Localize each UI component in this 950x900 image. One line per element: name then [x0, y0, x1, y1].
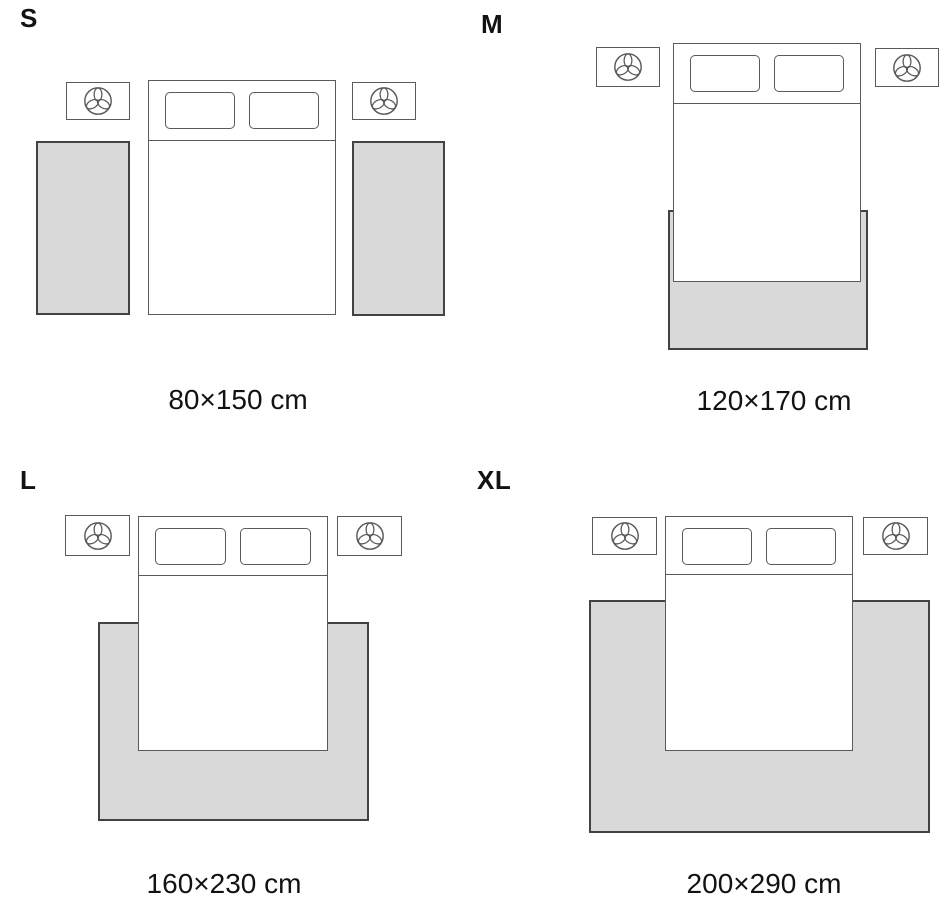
bed-headboard [149, 81, 335, 141]
plant-icon [367, 84, 401, 118]
plant-icon [353, 519, 387, 553]
size-caption-xl: 200×290 cm [687, 869, 842, 900]
nightstand-right [352, 82, 416, 120]
plant-icon [879, 519, 913, 553]
pillow-left [682, 528, 752, 565]
bed [665, 516, 853, 751]
nightstand-right [875, 48, 939, 87]
bed-headboard [139, 517, 327, 576]
rug-runner-left [36, 141, 130, 315]
pillow-right [240, 528, 311, 565]
plant-icon [608, 519, 642, 553]
rug-runner-right [352, 141, 445, 316]
pillow-left [690, 55, 760, 92]
plant-icon [890, 51, 924, 85]
pillow-left [155, 528, 226, 565]
nightstand-left [596, 47, 660, 87]
nightstand-left [592, 517, 657, 555]
pillow-right [774, 55, 844, 92]
pillow-left [165, 92, 235, 129]
bed [148, 80, 336, 315]
nightstand-left [65, 515, 130, 556]
bed [138, 516, 328, 751]
plant-icon [81, 84, 115, 118]
bed [673, 43, 861, 282]
plant-icon [81, 519, 115, 553]
nightstand-left [66, 82, 130, 120]
pillow-right [766, 528, 836, 565]
bed-headboard [666, 517, 852, 575]
pillow-right [249, 92, 319, 129]
rug-size-guide: S 80×150 cm M [0, 0, 950, 900]
bed-headboard [674, 44, 860, 104]
nightstand-right [337, 516, 402, 556]
nightstand-right [863, 517, 928, 555]
plant-icon [611, 50, 645, 84]
panel-label-xl: XL [477, 467, 511, 493]
